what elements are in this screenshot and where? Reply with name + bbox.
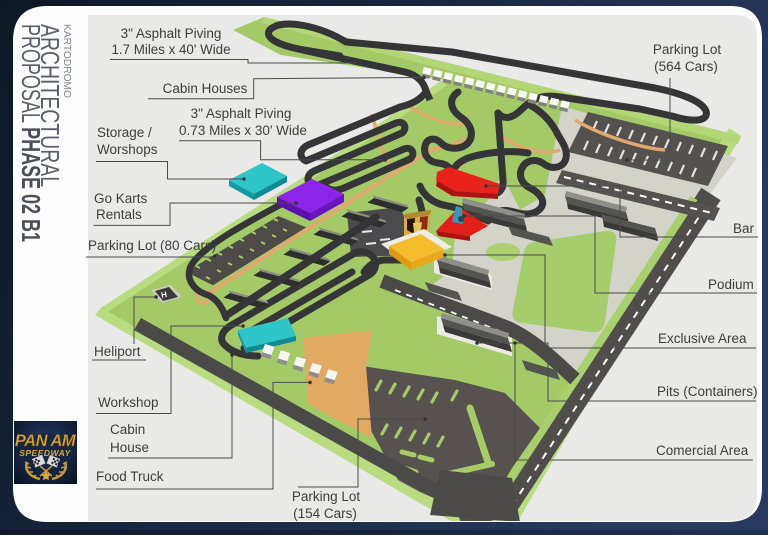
svg-text:House: House	[110, 440, 149, 455]
svg-text:Food Truck: Food Truck	[96, 469, 164, 484]
svg-text:Storage /: Storage /	[97, 125, 152, 140]
svg-text:3" Asphalt Piving: 3" Asphalt Piving	[121, 26, 222, 41]
svg-text:Parking Lot: Parking Lot	[653, 42, 722, 57]
svg-text:SPEEDWAY: SPEEDWAY	[19, 448, 71, 458]
svg-text:Podium: Podium	[708, 277, 754, 292]
svg-text:(154 Cars): (154 Cars)	[293, 506, 357, 521]
svg-text:1.7 Miles x 40' Wide: 1.7 Miles x 40' Wide	[112, 42, 231, 57]
svg-text:Pits (Containers): Pits (Containers)	[657, 384, 758, 399]
svg-text:Go Karts: Go Karts	[94, 191, 148, 206]
svg-text:Worshops: Worshops	[97, 142, 158, 157]
svg-text:Exclusive Area: Exclusive Area	[658, 331, 747, 346]
svg-text:KARTODROMO: KARTODROMO	[61, 24, 73, 98]
svg-text:0.73 Miles x 30' Wide: 0.73 Miles x 30' Wide	[179, 123, 307, 138]
svg-text:ARCHITECTURAL: ARCHITECTURAL	[35, 24, 65, 187]
svg-text:Comercial Area: Comercial Area	[656, 443, 749, 458]
svg-text:3" Asphalt Piving: 3" Asphalt Piving	[191, 106, 292, 121]
svg-text:Workshop: Workshop	[98, 395, 159, 410]
svg-text:Parking Lot (80 Cars): Parking Lot (80 Cars)	[88, 238, 216, 253]
svg-text:Cabin Houses: Cabin Houses	[163, 81, 248, 96]
svg-text:Rentals: Rentals	[96, 207, 142, 222]
svg-text:Bar: Bar	[733, 221, 755, 236]
svg-text:Cabin: Cabin	[110, 422, 145, 437]
svg-text:(564 Cars): (564 Cars)	[654, 59, 718, 74]
svg-text:Heliport: Heliport	[94, 344, 141, 359]
svg-text:Parking Lot: Parking Lot	[292, 489, 361, 504]
